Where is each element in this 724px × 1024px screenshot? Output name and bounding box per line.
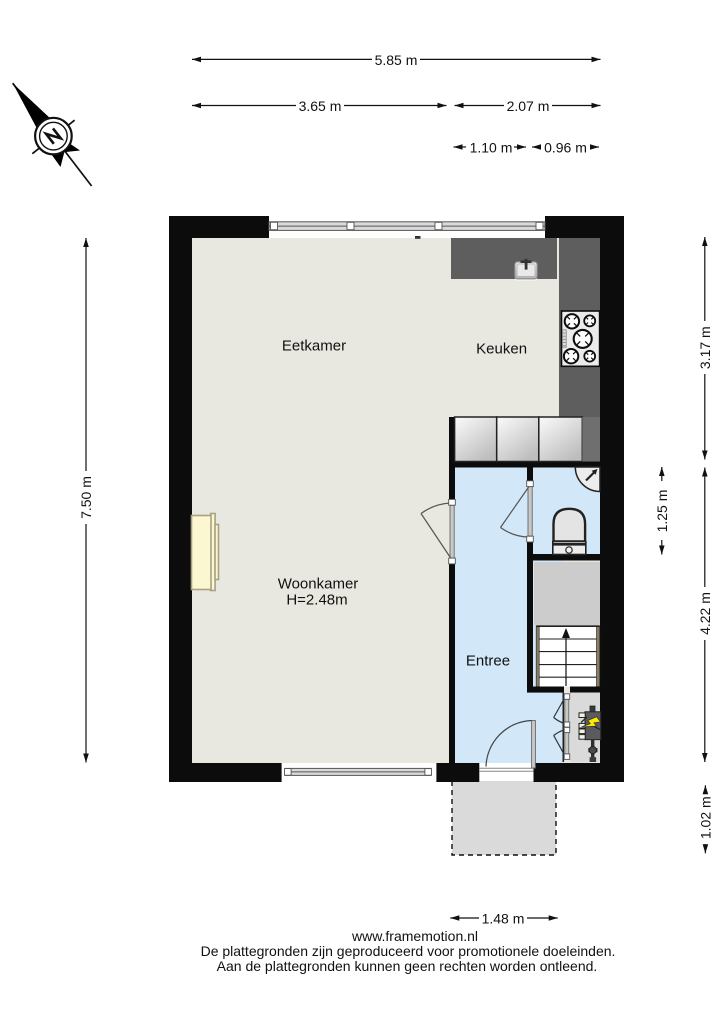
svg-text:2.07 m: 2.07 m <box>507 98 550 114</box>
svg-text:De plattegronden zijn geproduc: De plattegronden zijn geproduceerd voor … <box>201 943 616 959</box>
svg-text:www.framemotion.nl: www.framemotion.nl <box>351 928 478 944</box>
svg-text:7.50 m: 7.50 m <box>78 476 94 519</box>
svg-text:1.10 m: 1.10 m <box>470 140 513 156</box>
svg-text:1.02 m: 1.02 m <box>697 796 713 839</box>
svg-text:3.17 m: 3.17 m <box>697 326 713 369</box>
svg-text:Keuken: Keuken <box>476 341 527 358</box>
svg-text:1.48 m: 1.48 m <box>482 911 525 927</box>
svg-text:H=2.48m: H=2.48m <box>286 592 347 609</box>
svg-text:Aan de plattegronden kunnen ge: Aan de plattegronden kunnen geen rechten… <box>217 958 598 974</box>
svg-text:Woonkamer: Woonkamer <box>278 576 359 593</box>
svg-text:4.22 m: 4.22 m <box>697 592 713 635</box>
svg-text:Eetkamer: Eetkamer <box>282 338 346 355</box>
svg-text:3.65 m: 3.65 m <box>299 98 342 114</box>
svg-text:5.85 m: 5.85 m <box>375 52 418 68</box>
svg-text:Entree: Entree <box>466 653 510 670</box>
svg-text:1.25 m: 1.25 m <box>654 490 670 533</box>
svg-text:0.96 m: 0.96 m <box>544 140 587 156</box>
